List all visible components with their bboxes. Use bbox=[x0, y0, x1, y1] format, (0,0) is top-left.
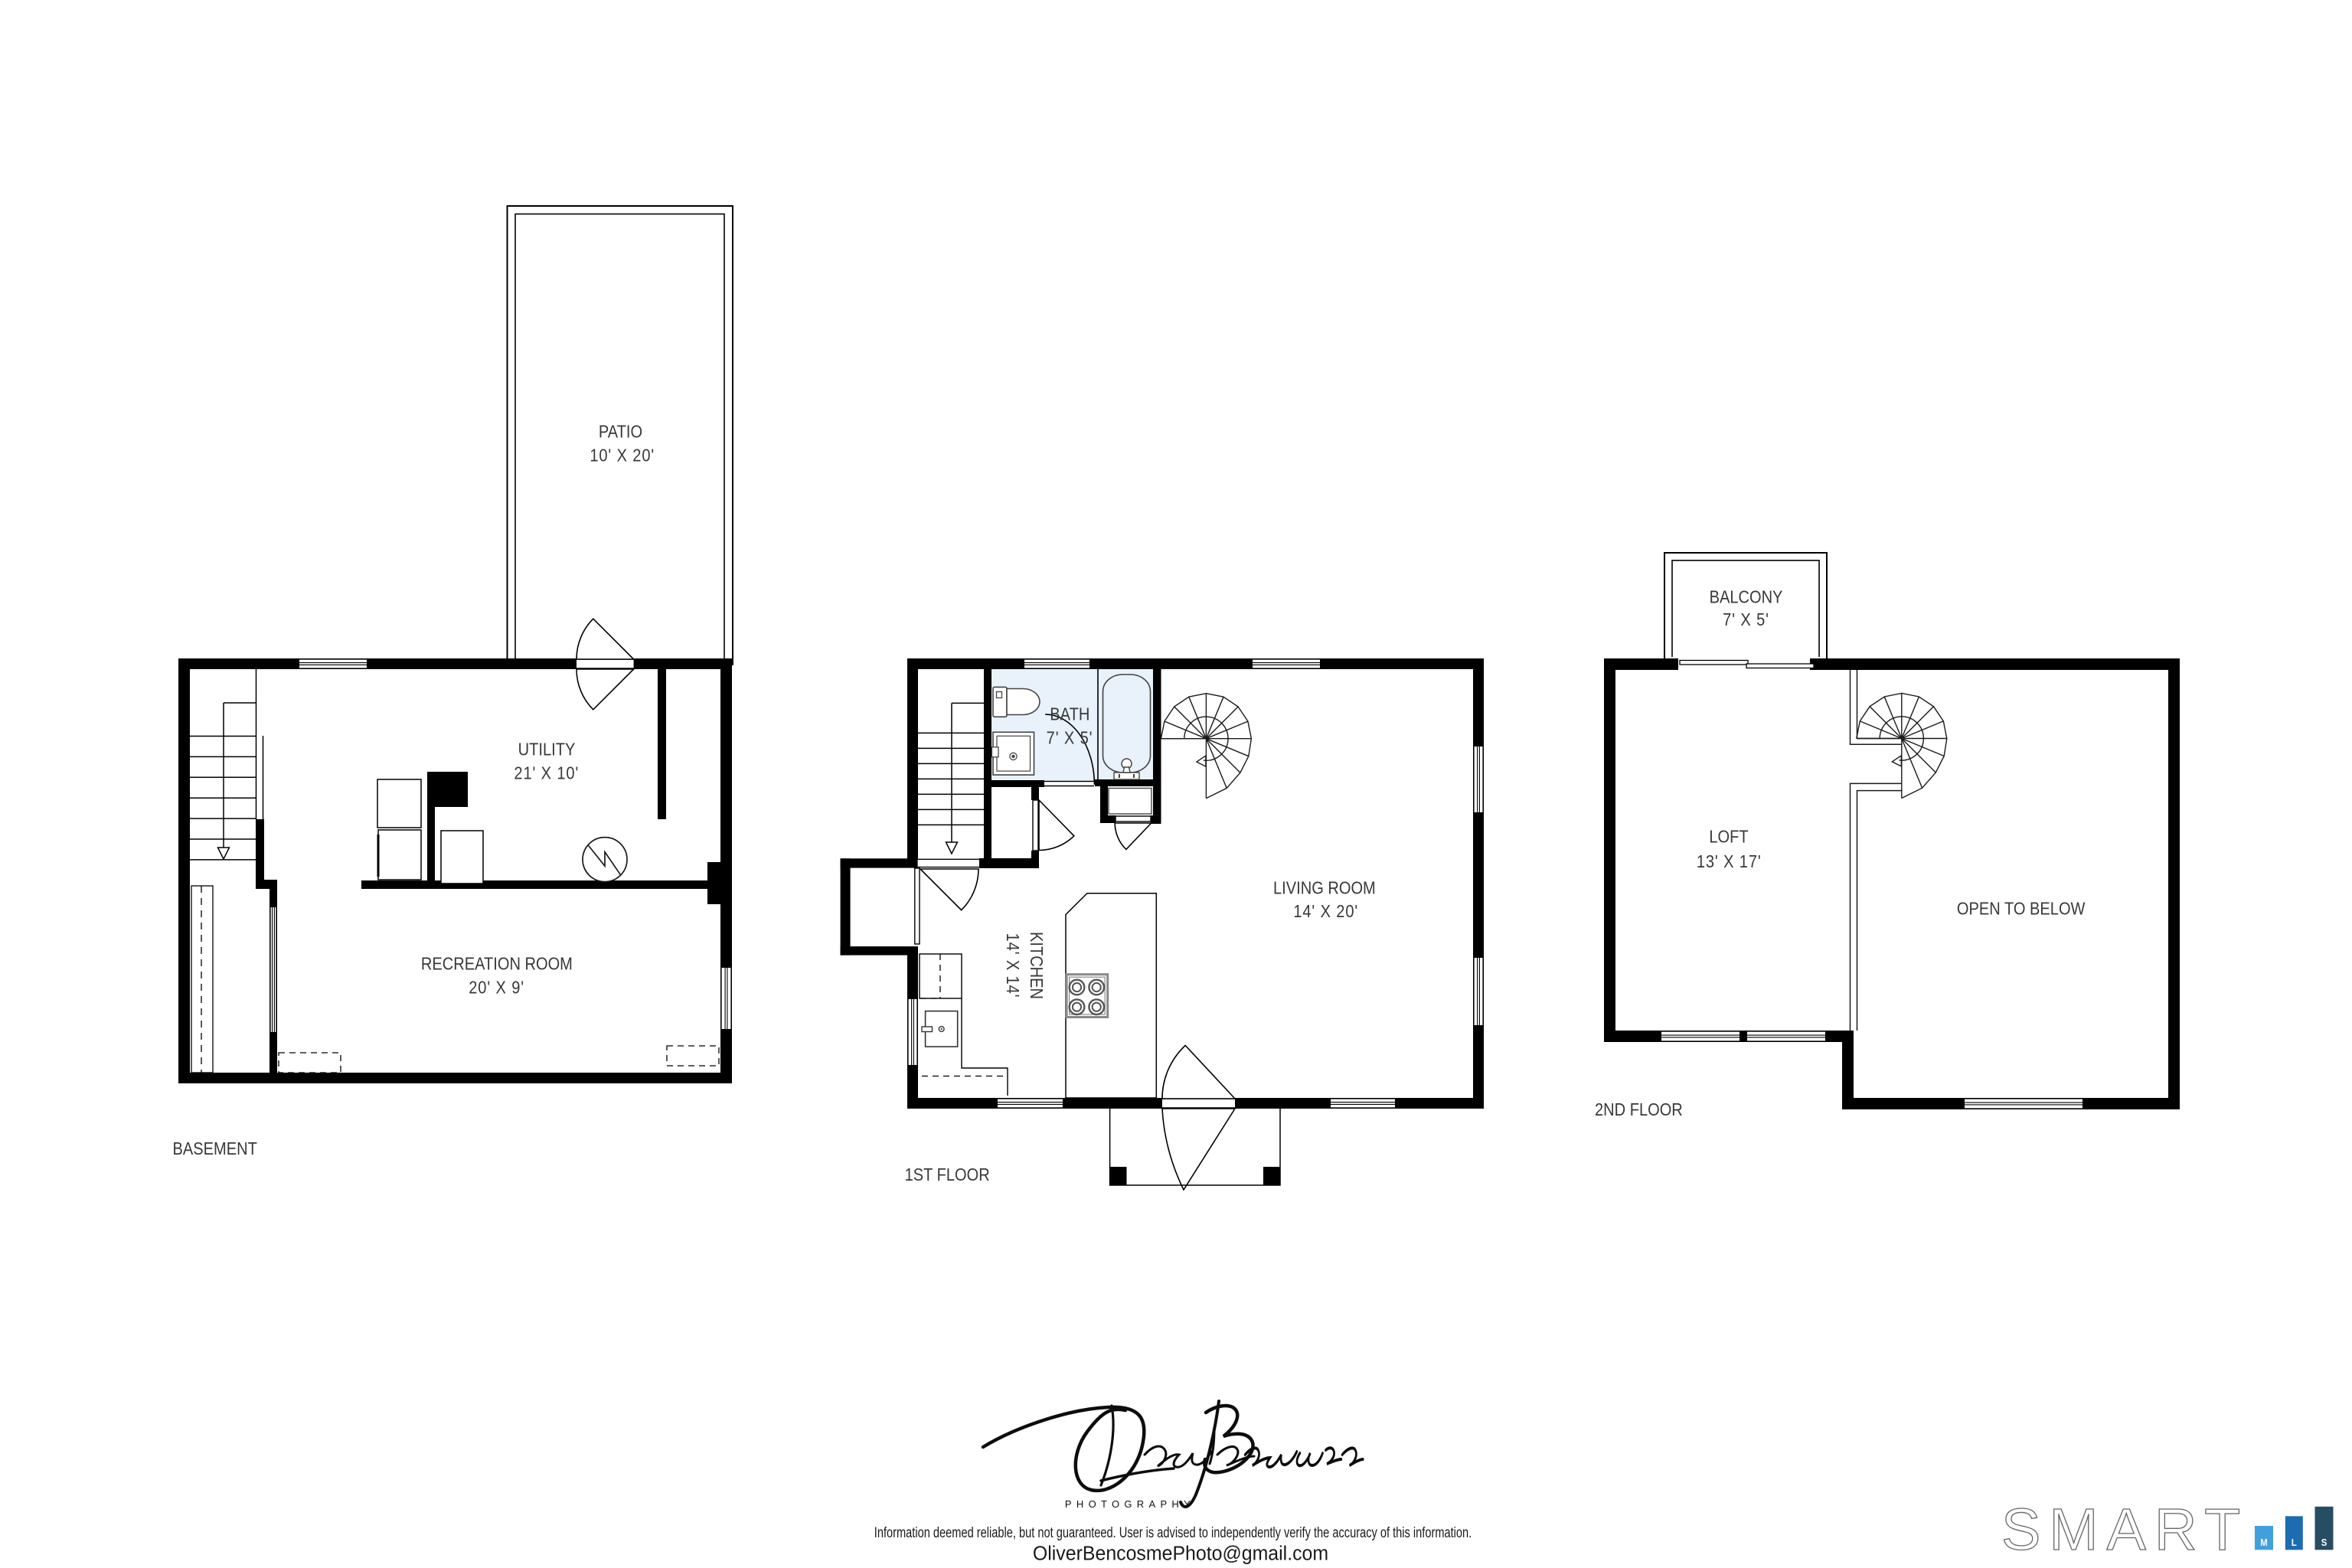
svg-text:BALCONY: BALCONY bbox=[1710, 587, 1783, 606]
svg-text:OliverBencosmePhoto@gmail.com: OliverBencosmePhoto@gmail.com bbox=[1033, 1543, 1328, 1565]
svg-text:Information deemed reliable, b: Information deemed reliable, but not gua… bbox=[874, 1524, 1472, 1541]
svg-text:13' X 17': 13' X 17' bbox=[1697, 852, 1762, 871]
svg-text:S: S bbox=[2321, 1537, 2327, 1548]
svg-text:10' X 20': 10' X 20' bbox=[590, 446, 655, 465]
svg-text:KITCHEN: KITCHEN bbox=[1027, 932, 1046, 999]
svg-text:PATIO: PATIO bbox=[599, 422, 642, 441]
svg-text:14' X 20': 14' X 20' bbox=[1293, 902, 1358, 921]
svg-text:14' X 14': 14' X 14' bbox=[1003, 933, 1022, 998]
svg-text:7' X 5': 7' X 5' bbox=[1723, 610, 1769, 629]
svg-text:20' X 9': 20' X 9' bbox=[469, 978, 524, 997]
svg-text:OPEN TO BELOW: OPEN TO BELOW bbox=[1957, 899, 2086, 918]
svg-text:BATH: BATH bbox=[1050, 704, 1089, 724]
svg-text:2ND FLOOR: 2ND FLOOR bbox=[1595, 1100, 1683, 1119]
svg-text:L: L bbox=[2292, 1537, 2297, 1548]
svg-text:LIVING ROOM: LIVING ROOM bbox=[1273, 878, 1376, 897]
svg-text:RECREATION ROOM: RECREATION ROOM bbox=[421, 954, 573, 973]
svg-text:1ST FLOOR: 1ST FLOOR bbox=[905, 1165, 990, 1184]
svg-text:M: M bbox=[2260, 1537, 2268, 1548]
svg-text:LOFT: LOFT bbox=[1709, 827, 1748, 846]
svg-text:SMART: SMART bbox=[2001, 1497, 2249, 1563]
svg-text:7' X 5': 7' X 5' bbox=[1047, 728, 1093, 747]
svg-text:PHOTOGRAPHY: PHOTOGRAPHY bbox=[1065, 1498, 1195, 1510]
svg-text:BASEMENT: BASEMENT bbox=[173, 1139, 257, 1158]
svg-text:21' X 10': 21' X 10' bbox=[514, 763, 579, 782]
svg-text:UTILITY: UTILITY bbox=[518, 740, 576, 759]
